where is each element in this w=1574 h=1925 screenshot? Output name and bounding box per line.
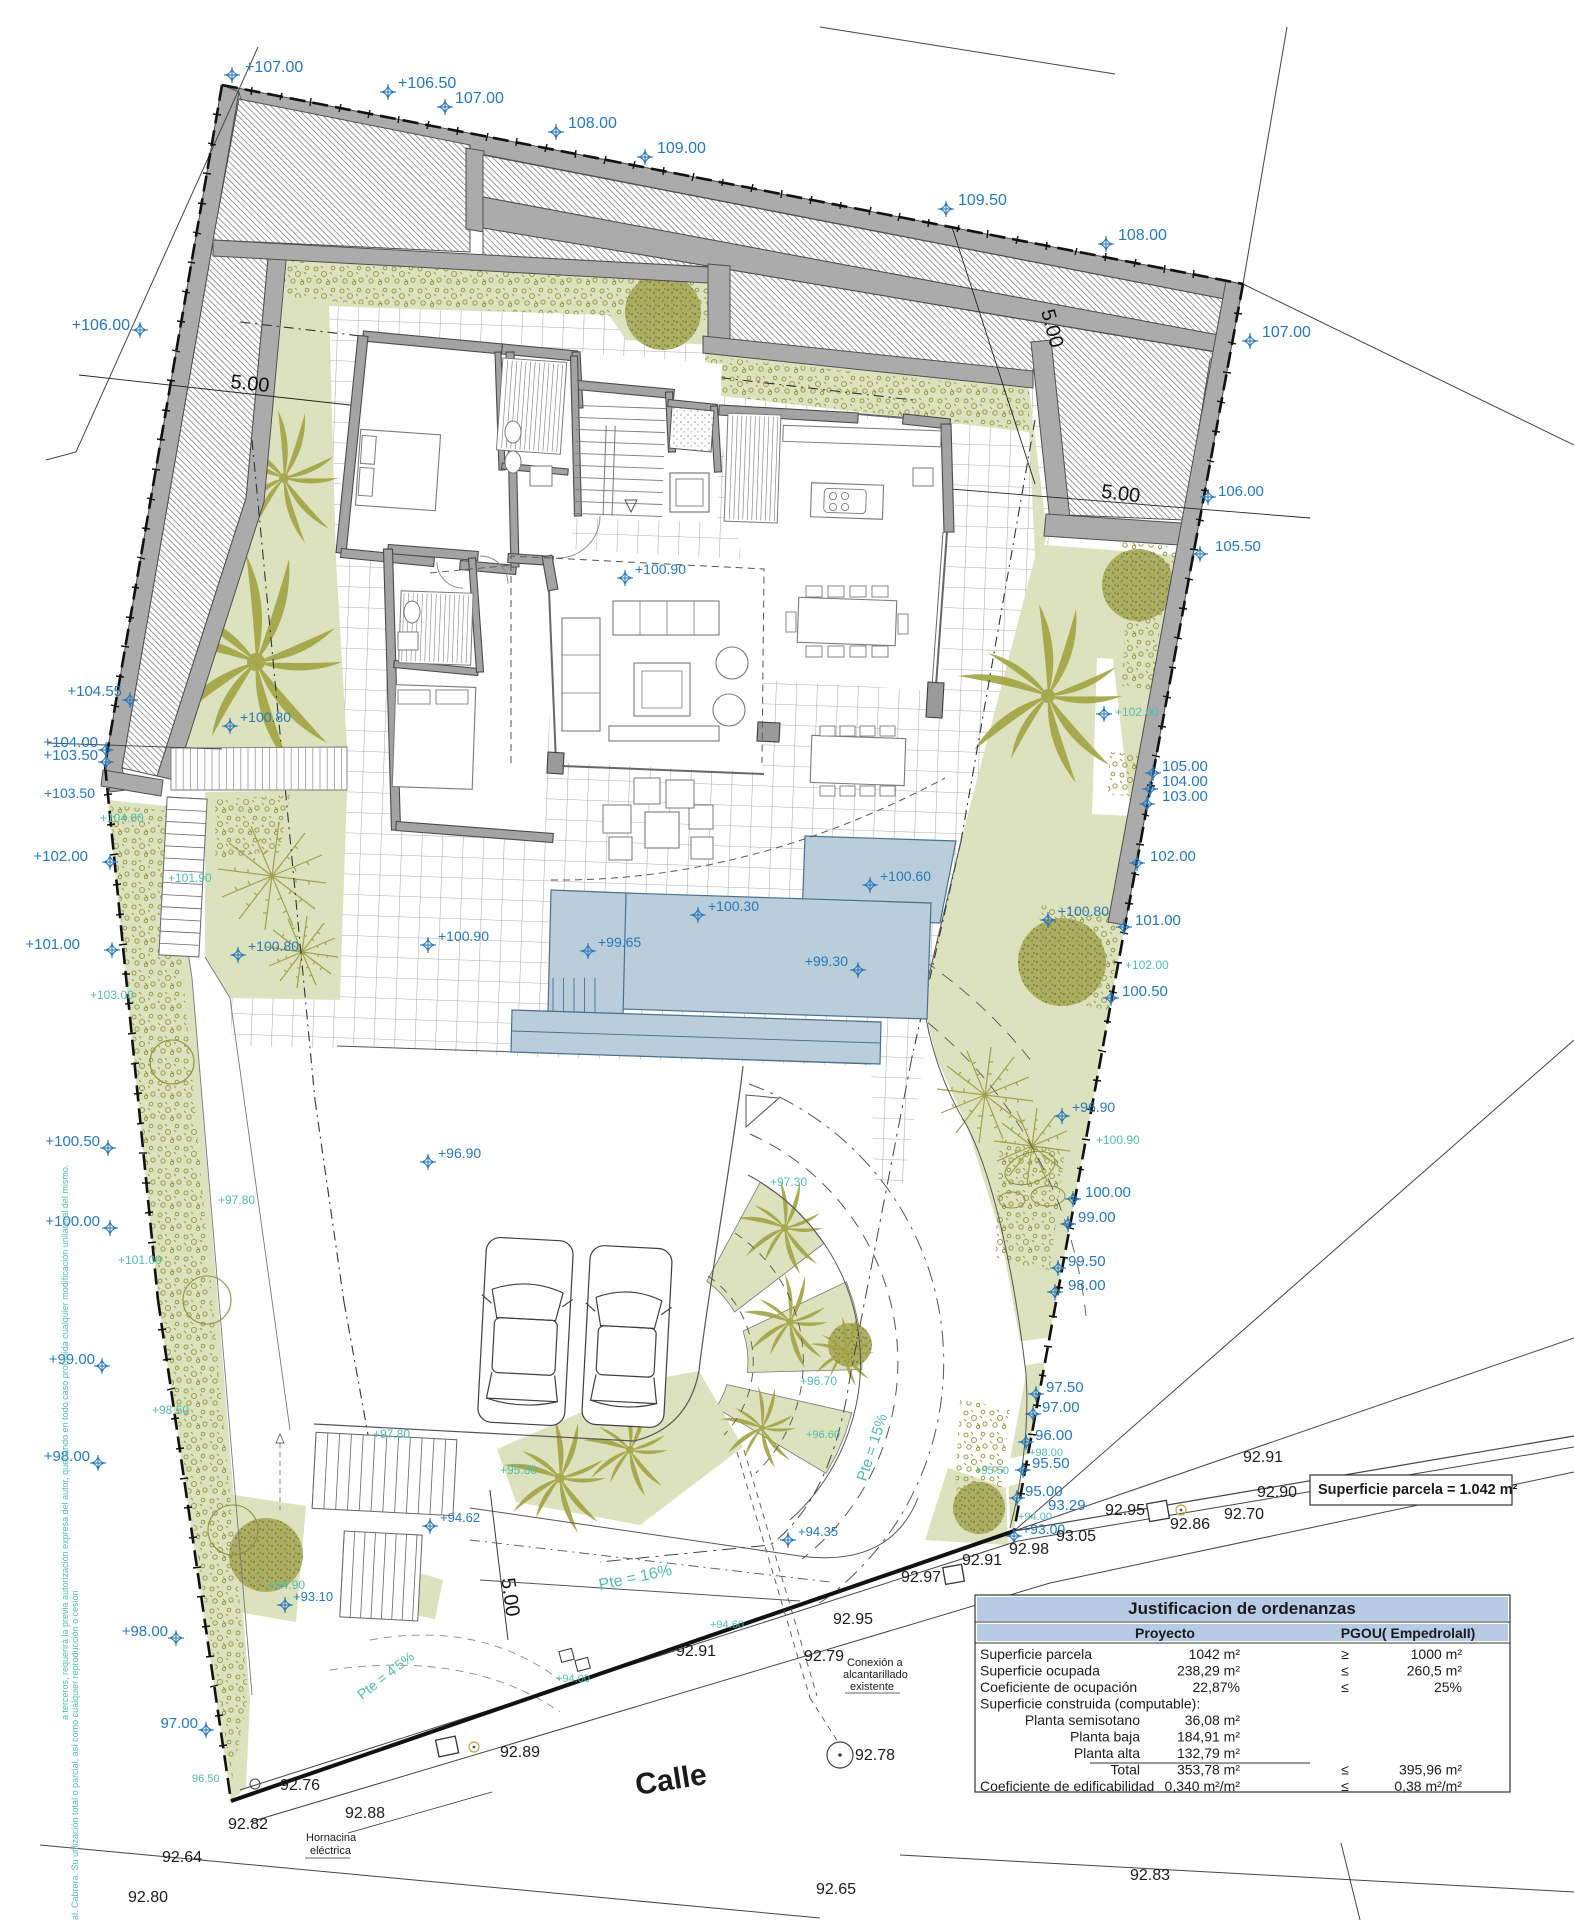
svg-text:100.50: 100.50 (1122, 983, 1168, 1000)
svg-text:+101.00: +101.00 (118, 1253, 162, 1267)
svg-text:0,340 m²/m²: 0,340 m²/m² (1165, 1778, 1241, 1794)
svg-text:Coeficiente de ocupación: Coeficiente de ocupación (980, 1679, 1137, 1695)
svg-text:+94.60: +94.60 (710, 1619, 744, 1631)
svg-text:≤: ≤ (1341, 1679, 1349, 1695)
svg-text:5.00: 5.00 (1100, 481, 1141, 508)
svg-text:238,29 m²: 238,29 m² (1177, 1663, 1240, 1679)
svg-text:+106.50: +106.50 (398, 75, 456, 92)
svg-text:353,78 m²: 353,78 m² (1177, 1762, 1240, 1778)
svg-text:+97.30: +97.30 (770, 1175, 807, 1189)
svg-text:Hornacina: Hornacina (306, 1832, 357, 1844)
svg-text:102.00: 102.00 (1150, 848, 1196, 865)
svg-text:107.00: 107.00 (455, 90, 504, 107)
svg-text:92.98: 92.98 (1009, 1541, 1049, 1558)
svg-text:184,91 m²: 184,91 m² (1177, 1729, 1240, 1745)
svg-text:+97.80: +97.80 (218, 1193, 255, 1207)
svg-text:eléctrica: eléctrica (310, 1845, 352, 1857)
svg-text:+100.90: +100.90 (635, 561, 686, 577)
svg-text:+96.90: +96.90 (438, 1145, 481, 1161)
svg-text:92.90: 92.90 (1257, 1484, 1297, 1501)
svg-text:92.95: 92.95 (833, 1611, 873, 1628)
svg-text:100.00: 100.00 (1085, 1184, 1131, 1201)
svg-text:+100.80: +100.80 (1058, 903, 1109, 919)
svg-text:108.00: 108.00 (568, 115, 617, 132)
svg-text:Planta baja: Planta baja (1070, 1729, 1140, 1745)
svg-text:92.65: 92.65 (816, 1881, 856, 1898)
svg-text:+94.00: +94.00 (1018, 1511, 1052, 1523)
svg-text:92.64: 92.64 (162, 1849, 202, 1866)
svg-text:92.70: 92.70 (1224, 1506, 1264, 1523)
svg-text:Conexión a: Conexión a (847, 1657, 904, 1669)
svg-text:Proyecto: Proyecto (1135, 1625, 1195, 1641)
svg-text:99.50: 99.50 (1068, 1253, 1106, 1270)
svg-text:92.97: 92.97 (901, 1569, 941, 1586)
svg-text:+106.00: +106.00 (72, 317, 130, 334)
svg-text:92.95: 92.95 (1105, 1502, 1145, 1519)
svg-text:+100.30: +100.30 (708, 898, 759, 914)
svg-text:Planta alta: Planta alta (1074, 1745, 1140, 1761)
svg-text:Superficie parcela: Superficie parcela (980, 1646, 1092, 1662)
svg-text:alcantarillado: alcantarillado (843, 1669, 908, 1681)
svg-text:25%: 25% (1434, 1679, 1462, 1695)
svg-text:+102.00: +102.00 (1115, 705, 1159, 719)
svg-text:+93.10: +93.10 (293, 1589, 333, 1604)
svg-text:+100.90: +100.90 (1096, 1133, 1140, 1147)
svg-text:+102.00: +102.00 (1125, 958, 1169, 972)
svg-text:+103.00: +103.00 (90, 988, 134, 1002)
svg-text:92.79: 92.79 (804, 1648, 844, 1665)
svg-text:132,79 m²: 132,79 m² (1177, 1745, 1240, 1761)
svg-text:106.00: 106.00 (1218, 483, 1264, 500)
svg-text:+96.90: +96.90 (1072, 1099, 1115, 1115)
svg-text:+96.60: +96.60 (806, 1429, 840, 1441)
svg-text:108.00: 108.00 (1118, 227, 1167, 244)
svg-text:Total: Total (1110, 1762, 1140, 1778)
svg-text:≤: ≤ (1341, 1762, 1349, 1778)
svg-text:+98.50: +98.50 (152, 1403, 189, 1417)
svg-text:+99.30: +99.30 (805, 953, 848, 969)
svg-text:103.00: 103.00 (1162, 788, 1208, 805)
svg-text:93.29: 93.29 (1048, 1497, 1086, 1514)
svg-text:98.00: 98.00 (1068, 1277, 1106, 1294)
svg-text:92.83: 92.83 (1130, 1867, 1170, 1884)
svg-text:existente: existente (850, 1681, 894, 1693)
svg-text:92.89: 92.89 (500, 1744, 540, 1761)
svg-text:107.00: 107.00 (1262, 324, 1311, 341)
svg-text:0,38 m²/m²: 0,38 m²/m² (1394, 1778, 1462, 1794)
svg-text:105.50: 105.50 (1215, 538, 1261, 555)
svg-text:92.88: 92.88 (345, 1805, 385, 1822)
svg-text:Planta semisotano: Planta semisotano (1025, 1712, 1140, 1728)
svg-text:≤: ≤ (1341, 1778, 1349, 1794)
svg-text:+94.62: +94.62 (440, 1510, 480, 1525)
svg-text:+100.90: +100.90 (438, 928, 489, 944)
svg-text:92.91: 92.91 (1243, 1449, 1283, 1466)
svg-text:395,96 m²: 395,96 m² (1399, 1762, 1462, 1778)
svg-text:109.50: 109.50 (958, 192, 1007, 209)
svg-text:+100.00: +100.00 (45, 1213, 100, 1230)
svg-text:92.78: 92.78 (855, 1747, 895, 1764)
svg-text:101.00: 101.00 (1135, 912, 1181, 929)
svg-text:Superficie ocupada: Superficie ocupada (980, 1663, 1100, 1679)
svg-text:a terceros, requerirá la previ: a terceros, requerirá la previa autoriza… (60, 1165, 70, 1720)
svg-text:1000 m²: 1000 m² (1411, 1646, 1463, 1662)
svg-text:97.50: 97.50 (1046, 1379, 1084, 1396)
svg-text:92.82: 92.82 (228, 1816, 268, 1833)
svg-text:+100.50: +100.50 (45, 1133, 100, 1150)
svg-text:92.91: 92.91 (676, 1643, 716, 1660)
svg-text:Justificacion de ordenanzas: Justificacion de ordenanzas (1128, 1599, 1356, 1618)
svg-text:al. Cabrera. Su utilización to: al. Cabrera. Su utilización total o parc… (70, 1590, 80, 1920)
svg-text:+101.90: +101.90 (168, 871, 212, 885)
svg-text:+98.00: +98.00 (122, 1623, 168, 1640)
svg-text:93.05: 93.05 (1056, 1528, 1096, 1545)
svg-text:+99.00: +99.00 (49, 1351, 95, 1368)
svg-text:109.00: 109.00 (657, 140, 706, 157)
svg-text:Coeficiente de edificabilidad: Coeficiente de edificabilidad (980, 1778, 1154, 1794)
svg-text:99.00: 99.00 (1078, 1209, 1116, 1226)
svg-text:1042 m²: 1042 m² (1189, 1646, 1241, 1662)
svg-text:+98.00: +98.00 (1029, 1447, 1063, 1459)
svg-text:+100.80: +100.80 (248, 938, 299, 954)
svg-text:+103.50: +103.50 (43, 747, 98, 764)
svg-text:+103.50: +103.50 (44, 785, 95, 801)
svg-text:+94.00: +94.00 (556, 1673, 590, 1685)
svg-text:+100.60: +100.60 (880, 868, 931, 884)
svg-text:Superficie parcela = 1.042 m²: Superficie parcela = 1.042 m² (1318, 1482, 1518, 1498)
svg-text:+95.80: +95.80 (500, 1463, 537, 1477)
svg-text:96.00: 96.00 (1035, 1427, 1073, 1444)
svg-text:+101.00: +101.00 (25, 936, 80, 953)
svg-text:+94.35: +94.35 (798, 1524, 838, 1539)
svg-text:+96.70: +96.70 (800, 1374, 837, 1388)
svg-text:+104.55: +104.55 (67, 683, 122, 700)
svg-text:5.00: 5.00 (229, 371, 270, 397)
svg-text:+97.80: +97.80 (373, 1427, 410, 1441)
svg-text:96.50: 96.50 (192, 1773, 220, 1785)
svg-text:+102.00: +102.00 (33, 848, 88, 865)
svg-text:92.91: 92.91 (962, 1552, 1002, 1569)
svg-text:Superficie construida (computa: Superficie construida (computable): (980, 1696, 1200, 1712)
svg-text:+104.00: +104.00 (100, 811, 144, 825)
svg-text:260,5 m²: 260,5 m² (1407, 1663, 1463, 1679)
svg-text:≤: ≤ (1341, 1663, 1349, 1679)
svg-text:92.86: 92.86 (1170, 1516, 1210, 1533)
svg-text:+99.65: +99.65 (598, 934, 641, 950)
svg-text:+107.00: +107.00 (245, 59, 303, 76)
svg-text:92.80: 92.80 (128, 1889, 168, 1906)
svg-text:97.00: 97.00 (160, 1715, 198, 1732)
svg-text:97.00: 97.00 (1042, 1399, 1080, 1416)
svg-text:≥: ≥ (1341, 1646, 1349, 1662)
svg-text:+100.80: +100.80 (240, 709, 291, 725)
svg-text:36,08 m²: 36,08 m² (1185, 1712, 1241, 1728)
svg-text:22,87%: 22,87% (1193, 1679, 1240, 1695)
svg-text:92.76: 92.76 (280, 1777, 320, 1794)
svg-text:PGOU( EmpedrolaII): PGOU( EmpedrolaII) (1341, 1625, 1476, 1641)
svg-text:+95.50: +95.50 (975, 1465, 1009, 1477)
